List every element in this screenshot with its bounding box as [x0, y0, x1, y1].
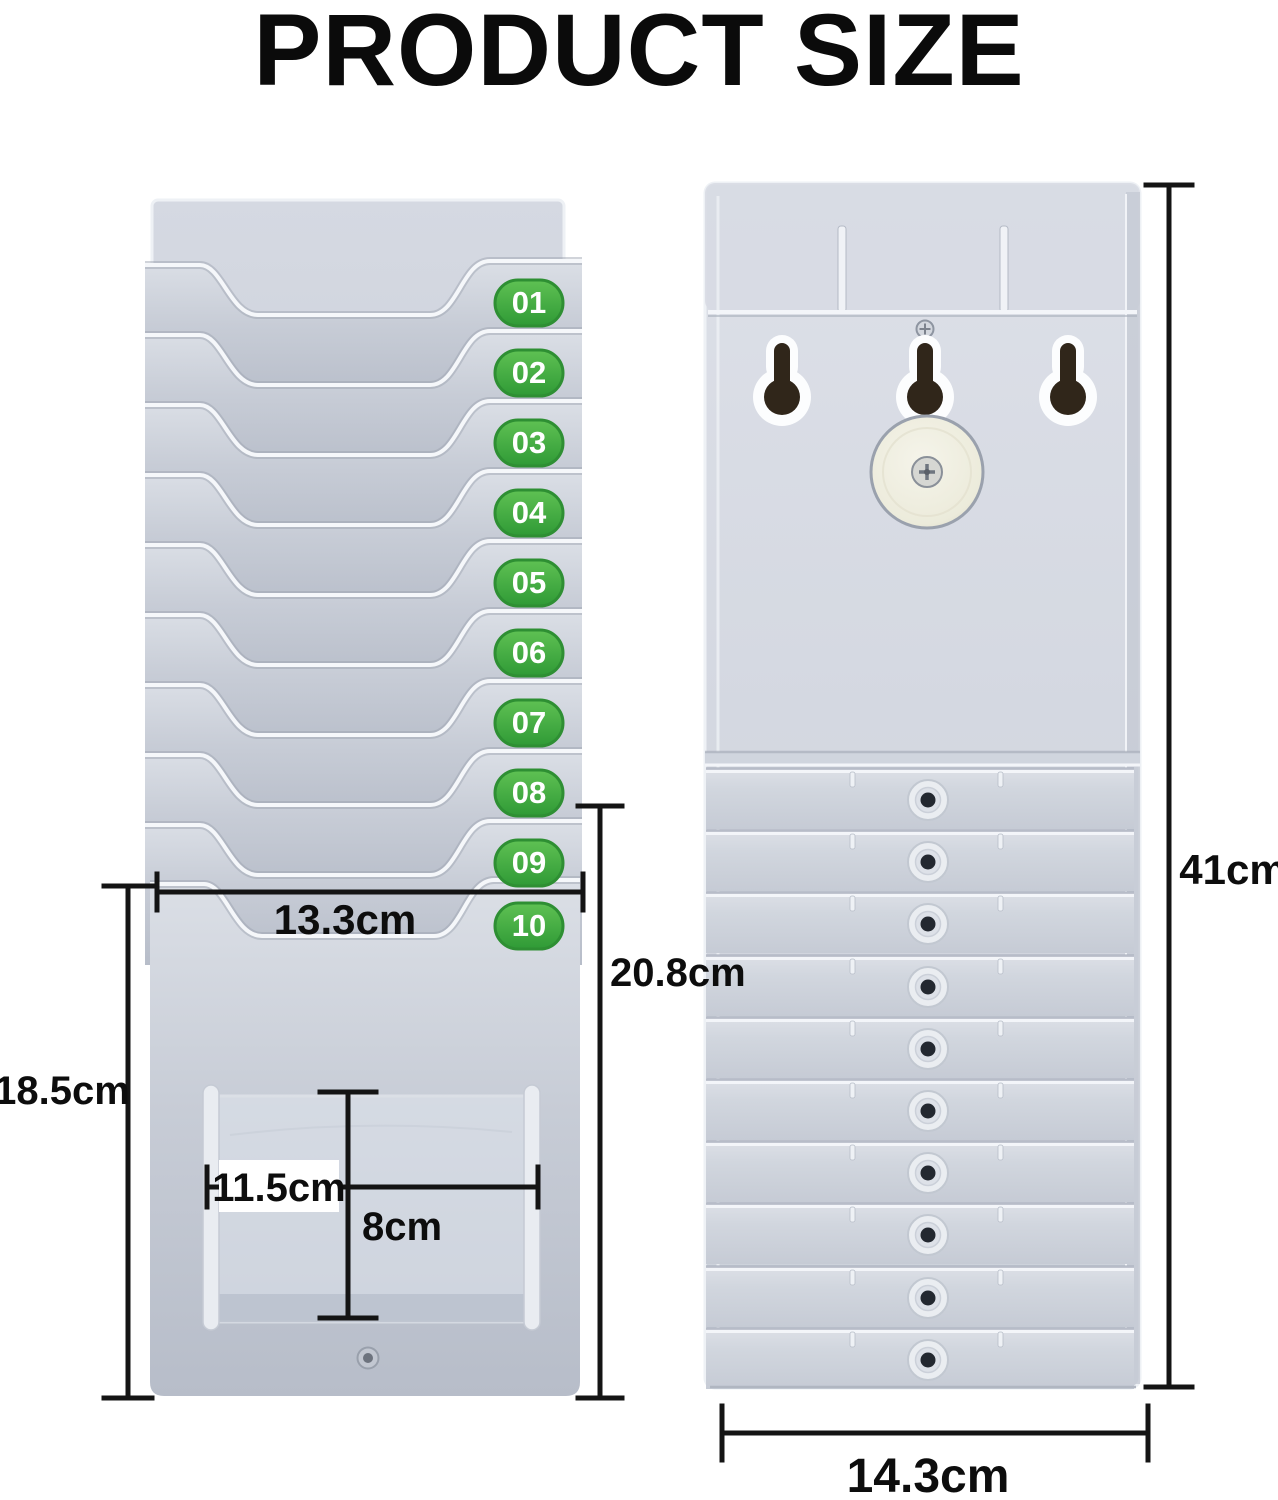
dimension-back-width: 14.3cm [722, 1406, 1148, 1500]
back-slat-4 [706, 955, 1134, 1016]
dimension-label-back-width: 14.3cm [847, 1450, 1010, 1500]
top-compartment [705, 183, 1140, 311]
compartment-divider-right [1000, 226, 1008, 312]
dimension-total-height: 41cm [1146, 185, 1278, 1387]
slot-badge-09: 09 [512, 845, 546, 880]
dimension-label-front-lower-height: 18.5cm [0, 1069, 130, 1113]
back-slat-7 [706, 1141, 1134, 1202]
dimension-label-pocket-height: 8cm [362, 1205, 442, 1249]
slot-badge-03: 03 [512, 425, 546, 460]
slot-badge-10: 10 [512, 908, 546, 943]
slot-badge-02: 02 [512, 355, 546, 390]
product-size-diagram: PRODUCT SIZE [0, 0, 1278, 1500]
front-screw-hole [358, 1348, 379, 1369]
back-slat-5 [706, 1017, 1134, 1078]
diagram-canvas: 01 02 03 04 05 06 07 08 09 10 [0, 0, 1278, 1500]
slot-badge-05: 05 [512, 565, 546, 600]
compartment-divider-left [838, 226, 846, 312]
slat-section-lip [705, 752, 1140, 766]
dimension-label-pocket-width: 11.5cm [212, 1166, 345, 1210]
dimension-front-lower-height: 18.5cm [0, 886, 152, 1398]
back-slat-3 [706, 892, 1134, 953]
back-view-rack [705, 183, 1140, 1389]
back-slat-9 [706, 1266, 1134, 1327]
slot-badge-04: 04 [512, 495, 547, 530]
slot-badge-08: 08 [512, 775, 546, 810]
dimension-label-pocket-section-height: 20.8cm [610, 951, 746, 995]
back-slats [706, 768, 1134, 1389]
slot-badge-06: 06 [512, 635, 546, 670]
dimension-label-total-height: 41cm [1179, 846, 1278, 893]
slot-badge-07: 07 [512, 705, 546, 740]
back-slat-8 [706, 1203, 1134, 1264]
back-slat-2 [706, 830, 1134, 891]
back-slat-10 [706, 1328, 1134, 1389]
back-slat-6 [706, 1079, 1134, 1140]
top-screw [917, 321, 934, 338]
slot-badge-01: 01 [512, 285, 546, 320]
lock-disc [871, 416, 983, 528]
back-slat-1 [706, 768, 1134, 829]
dimension-label-slot-width: 13.3cm [274, 896, 416, 943]
